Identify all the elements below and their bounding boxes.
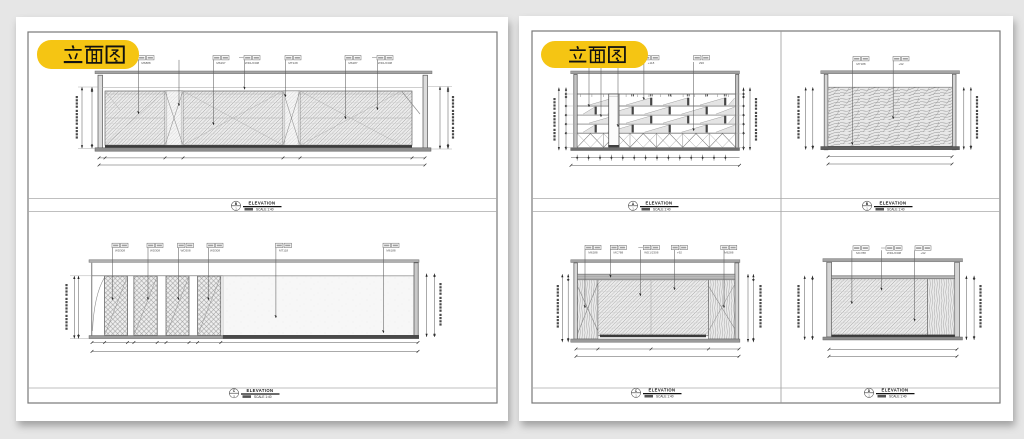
svg-text:M6188: M6188 (386, 249, 396, 253)
svg-text:+92: +92 (920, 251, 925, 255)
svg-text:M6287: M6287 (348, 61, 358, 65)
svg-text:SCALE 1:40: SCALE 1:40 (889, 395, 907, 399)
svg-text:296: 296 (699, 61, 704, 65)
svg-text:WD1/2308: WD1/2308 (644, 251, 659, 255)
svg-text:SCALE 1:40: SCALE 1:40 (653, 208, 671, 212)
svg-text:WD1/2308: WD1/2308 (245, 61, 260, 65)
svg-text:ELEVATION: ELEVATION (247, 388, 274, 393)
svg-text:+92: +92 (898, 62, 903, 66)
svg-text:SCALE 1:40: SCALE 1:40 (254, 395, 272, 399)
svg-text:SCALE 1:40: SCALE 1:40 (256, 208, 274, 212)
svg-text:ELEVATION: ELEVATION (882, 388, 909, 393)
svg-text:WD308: WD308 (180, 249, 190, 253)
svg-text:+118: +118 (648, 61, 655, 65)
svg-text:ELEVATION: ELEVATION (249, 201, 276, 206)
svg-text:MT118: MT118 (279, 249, 288, 253)
svg-text:ELEVATION: ELEVATION (649, 388, 676, 393)
svg-text:ELEVATION: ELEVATION (880, 201, 907, 206)
svg-text:SCALE 1:40: SCALE 1:40 (656, 395, 674, 399)
svg-text:WD308: WD308 (115, 249, 125, 253)
svg-text:ELEVATION: ELEVATION (646, 201, 673, 206)
svg-text:WD1/2308: WD1/2308 (887, 251, 902, 255)
svg-text:WD308: WD308 (210, 249, 220, 253)
svg-text:M7188: M7188 (856, 62, 866, 66)
svg-text:WD308: WD308 (150, 249, 160, 253)
svg-text:MC788: MC788 (613, 251, 623, 255)
svg-text:MC788: MC788 (856, 251, 866, 255)
svg-text:MT228: MT228 (288, 61, 298, 65)
svg-text:M6288: M6288 (724, 251, 734, 255)
svg-text:M6297: M6297 (216, 61, 226, 65)
svg-text:WD1/2308: WD1/2308 (378, 61, 393, 65)
svg-text:+92: +92 (677, 251, 682, 255)
svg-text:M6888: M6888 (141, 61, 151, 65)
svg-text:M6288: M6288 (588, 251, 598, 255)
svg-text:SCALE 1:40: SCALE 1:40 (887, 208, 905, 212)
